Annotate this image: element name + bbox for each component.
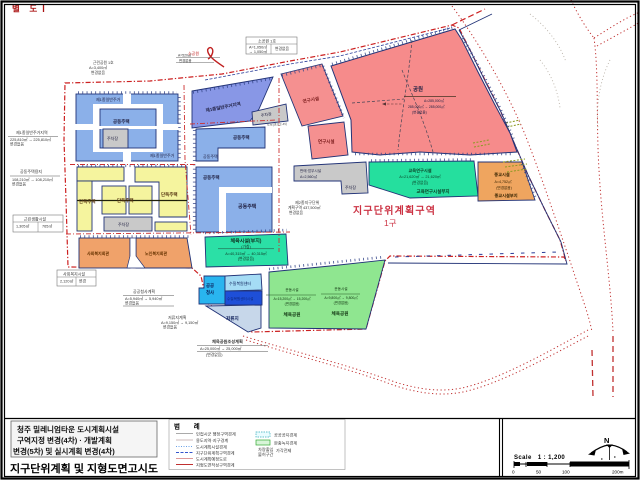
svg-text:공공공지경계: 공공공지경계 bbox=[274, 432, 297, 439]
svg-text:제1종일반주거: 제1종일반주거 bbox=[150, 152, 175, 158]
svg-text:공동주택: 공동주택 bbox=[238, 203, 257, 210]
svg-text:A=5,940㎡ → 5,940㎡: A=5,940㎡ → 5,940㎡ bbox=[125, 296, 162, 301]
svg-text:변경없음: 변경없음 bbox=[163, 325, 177, 330]
svg-text:사회복지시설: 사회복지시설 bbox=[63, 271, 85, 277]
svg-text:노인복지회관: 노인복지회관 bbox=[145, 250, 167, 256]
svg-text:공동주택: 공동주택 bbox=[233, 134, 250, 141]
svg-text:1,305㎡: 1,305㎡ bbox=[16, 224, 30, 229]
svg-text:A=2,560㎡: A=2,560㎡ bbox=[300, 174, 317, 179]
svg-text:변경: 변경 bbox=[79, 279, 86, 284]
svg-text:종교시설부지: 종교시설부지 bbox=[494, 192, 517, 199]
svg-text:(변경없음): (변경없음) bbox=[206, 352, 223, 357]
svg-text:변경없음: 변경없음 bbox=[289, 210, 303, 215]
svg-text:공동주택: 공동주택 bbox=[113, 118, 130, 125]
svg-text:(가칭): (가칭) bbox=[241, 244, 251, 249]
svg-text:저류지계획: 저류지계획 bbox=[168, 314, 187, 320]
svg-text:변경없음: 변경없음 bbox=[179, 58, 191, 63]
svg-text:A=9,800㎡ → 9,800㎡: A=9,800㎡ → 9,800㎡ bbox=[324, 295, 358, 300]
svg-text:765㎡: 765㎡ bbox=[42, 224, 52, 229]
svg-text:지구단위계획구역경계: 지구단위계획구역경계 bbox=[196, 450, 235, 457]
svg-text:소공원 1호: 소공원 1호 bbox=[258, 38, 276, 44]
svg-text:공공: 공공 bbox=[206, 282, 214, 289]
svg-text:단독주택: 단독주택 bbox=[79, 198, 96, 205]
svg-text:저류지: 저류지 bbox=[226, 315, 239, 322]
svg-text:체육공원조성계획: 체육공원조성계획 bbox=[212, 338, 243, 345]
svg-text:변경없음: 변경없음 bbox=[275, 46, 289, 51]
svg-text:A=285,000㎡: A=285,000㎡ bbox=[424, 98, 444, 103]
svg-text:A=1,050㎡: A=1,050㎡ bbox=[249, 45, 267, 50]
svg-text:(변경없음): (변경없음) bbox=[496, 185, 512, 190]
svg-text:계획구역 437,500㎡: 계획구역 437,500㎡ bbox=[288, 205, 321, 210]
svg-text:A=9,150㎡ → 9,150㎡: A=9,150㎡ → 9,150㎡ bbox=[161, 320, 198, 325]
svg-text:운동시설: 운동시설 bbox=[285, 287, 298, 292]
svg-text:Scale 1 : 1,200: Scale 1 : 1,200 bbox=[514, 455, 565, 461]
svg-text:A=25,000㎡ → 25,000㎡: A=25,000㎡ → 25,000㎡ bbox=[200, 346, 242, 351]
svg-text:100: 100 bbox=[562, 470, 570, 475]
svg-text:변경없음: 변경없음 bbox=[125, 301, 139, 306]
svg-text:N: N bbox=[604, 436, 609, 445]
svg-text:완충녹지경계: 완충녹지경계 bbox=[274, 440, 297, 447]
svg-text:제1종일반주거지역: 제1종일반주거지역 bbox=[16, 129, 48, 135]
svg-text:변경없음: 변경없음 bbox=[10, 142, 24, 147]
svg-text:단독주택: 단독주택 bbox=[117, 197, 134, 204]
svg-text:체육공원: 체육공원 bbox=[284, 311, 301, 318]
svg-text:(변경없음): (변경없음) bbox=[412, 110, 427, 115]
svg-text:운동시설: 운동시설 bbox=[334, 286, 347, 291]
svg-text:수질복원센터시설: 수질복원센터시설 bbox=[227, 296, 253, 301]
svg-text:지구단위계획구역: 지구단위계획구역 bbox=[353, 204, 436, 217]
svg-text:주차장: 주차장 bbox=[345, 184, 356, 190]
svg-text:→ 1,050㎡: → 1,050㎡ bbox=[249, 49, 267, 54]
svg-text:공원: 공원 bbox=[413, 85, 423, 93]
svg-text:변경없음: 변경없음 bbox=[91, 70, 105, 75]
svg-text:범 례: 범 례 bbox=[174, 422, 206, 431]
svg-text:108,210㎡ → 108,210㎡: 108,210㎡ → 108,210㎡ bbox=[12, 177, 53, 182]
svg-text:0: 0 bbox=[512, 470, 515, 475]
svg-text:A=520㎡: A=520㎡ bbox=[178, 53, 192, 58]
svg-text:제2종지구단위: 제2종지구단위 bbox=[295, 199, 320, 205]
svg-text:근린공원 1호: 근린공원 1호 bbox=[93, 60, 114, 65]
svg-text:변경없음: 변경없음 bbox=[12, 182, 26, 187]
svg-text:가각전제: 가각전제 bbox=[276, 447, 292, 454]
svg-text:A=4,752㎡: A=4,752㎡ bbox=[494, 179, 511, 184]
svg-text:불허구간: 불허구간 bbox=[258, 451, 274, 458]
svg-text:도시계획시설경계: 도시계획시설경계 bbox=[196, 444, 227, 451]
svg-text:2,120㎡: 2,120㎡ bbox=[60, 279, 74, 284]
svg-text:A=40,315㎡ → 40,315㎡: A=40,315㎡ → 40,315㎡ bbox=[225, 251, 267, 256]
svg-text:285,000㎡ → 285,000㎡: 285,000㎡ → 285,000㎡ bbox=[408, 104, 445, 109]
svg-text:(변경없음): (변경없음) bbox=[238, 256, 255, 261]
svg-text:공공청사계획: 공공청사계획 bbox=[133, 288, 155, 294]
svg-text:공동주택: 공동주택 bbox=[203, 153, 218, 159]
svg-text:A=15,200㎡ → 15,200㎡: A=15,200㎡ → 15,200㎡ bbox=[273, 296, 311, 301]
svg-text:근린생활시설: 근린생활시설 bbox=[24, 216, 46, 222]
svg-text:구역지정 변경(4차) · 개발계획: 구역지정 변경(4차) · 개발계획 bbox=[17, 435, 112, 445]
svg-text:변경(5차) 및 실시계획 변경(4차): 변경(5차) 및 실시계획 변경(4차) bbox=[13, 446, 115, 456]
svg-text:체육공원: 체육공원 bbox=[332, 310, 349, 317]
svg-text:(변경없음): (변경없음) bbox=[334, 300, 349, 305]
svg-text:1구: 1구 bbox=[384, 218, 397, 228]
svg-text:종교시설: 종교시설 bbox=[494, 171, 510, 178]
svg-text:제1종일반주거: 제1종일반주거 bbox=[96, 96, 121, 102]
svg-text:단독주택: 단독주택 bbox=[161, 191, 178, 198]
svg-text:공동주택: 공동주택 bbox=[203, 174, 220, 181]
svg-text:청사: 청사 bbox=[206, 289, 215, 296]
svg-text:용도지역·지구경계: 용도지역·지구경계 bbox=[196, 437, 228, 444]
svg-text:사회복지회관: 사회복지회관 bbox=[87, 250, 109, 256]
svg-text:A=21,620㎡ → 21,620㎡: A=21,620㎡ → 21,620㎡ bbox=[399, 174, 441, 179]
svg-text:(변경없음): (변경없음) bbox=[412, 180, 429, 185]
svg-text:연구시설: 연구시설 bbox=[318, 138, 335, 145]
svg-text:체육시설(부지): 체육시설(부지) bbox=[231, 238, 262, 245]
svg-text:교육연구시설부지: 교육연구시설부지 bbox=[416, 188, 449, 195]
svg-text:주차장: 주차장 bbox=[107, 135, 118, 141]
svg-text:200m: 200m bbox=[612, 470, 624, 475]
svg-text:지형도면작성구역경계: 지형도면작성구역경계 bbox=[196, 462, 235, 469]
svg-text:판매·업무시설: 판매·업무시설 bbox=[300, 168, 321, 173]
svg-text:50: 50 bbox=[536, 470, 542, 475]
svg-text:도시계획예정도로: 도시계획예정도로 bbox=[196, 456, 227, 463]
svg-text:인접시군 행정구역경계: 인접시군 행정구역경계 bbox=[196, 431, 236, 438]
svg-text:A=3,400㎡: A=3,400㎡ bbox=[89, 65, 107, 70]
svg-text:225,810㎡ → 225,810㎡: 225,810㎡ → 225,810㎡ bbox=[10, 137, 51, 142]
svg-text:지구단위계획 및 지형도면고시도: 지구단위계획 및 지형도면고시도 bbox=[10, 462, 158, 475]
svg-text:(변경없음): (변경없음) bbox=[285, 301, 300, 306]
svg-text:수질복원센터: 수질복원센터 bbox=[229, 280, 251, 286]
svg-text:공동주택용지: 공동주택용지 bbox=[20, 168, 42, 174]
svg-text:청주 밀레니엄타운 도시계획시설: 청주 밀레니엄타운 도시계획시설 bbox=[17, 424, 119, 434]
svg-text:교육연구시설: 교육연구시설 bbox=[408, 167, 431, 174]
svg-text:주차장: 주차장 bbox=[118, 221, 129, 227]
